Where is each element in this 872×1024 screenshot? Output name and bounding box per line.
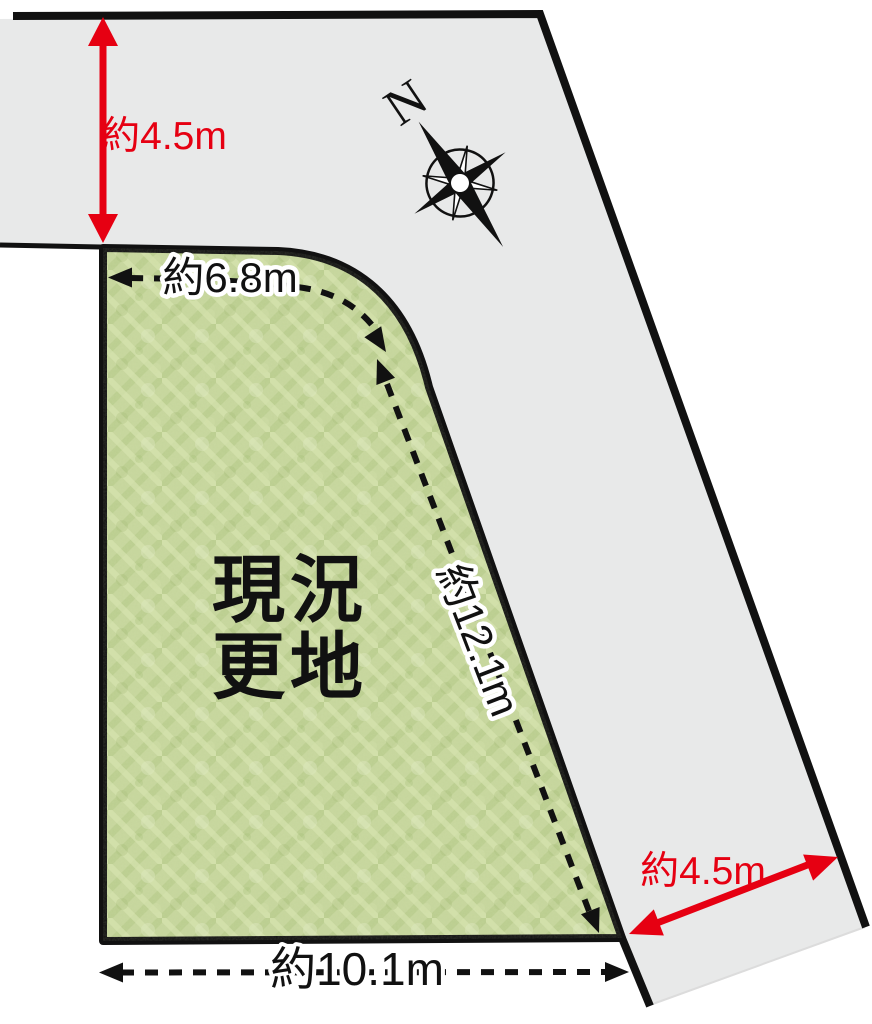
arrowhead-right — [605, 962, 629, 982]
bottom-edge-measurement: 約10.1m — [99, 943, 629, 995]
plot-status-label-line1: 現況 — [212, 550, 368, 631]
road-bottom-border — [0, 245, 101, 247]
road-width-right-label: 約4.5m — [640, 850, 766, 893]
diagram-canvas: 約6.8m 約12.1m 約10.1m 約4.5m 約4.5m 現況 更地 — [0, 0, 872, 1024]
arrowhead-left — [99, 963, 123, 983]
plot-status-label-line2: 更地 — [212, 627, 368, 708]
plot-bottom-edge-label: 約10.1m — [270, 943, 444, 995]
land-plot-diagram: 約6.8m 約12.1m 約10.1m 約4.5m 約4.5m 現況 更地 — [0, 0, 872, 1024]
plot-top-edge-label: 約6.8m — [162, 254, 297, 301]
road-width-top-label: 約4.5m — [101, 115, 227, 158]
